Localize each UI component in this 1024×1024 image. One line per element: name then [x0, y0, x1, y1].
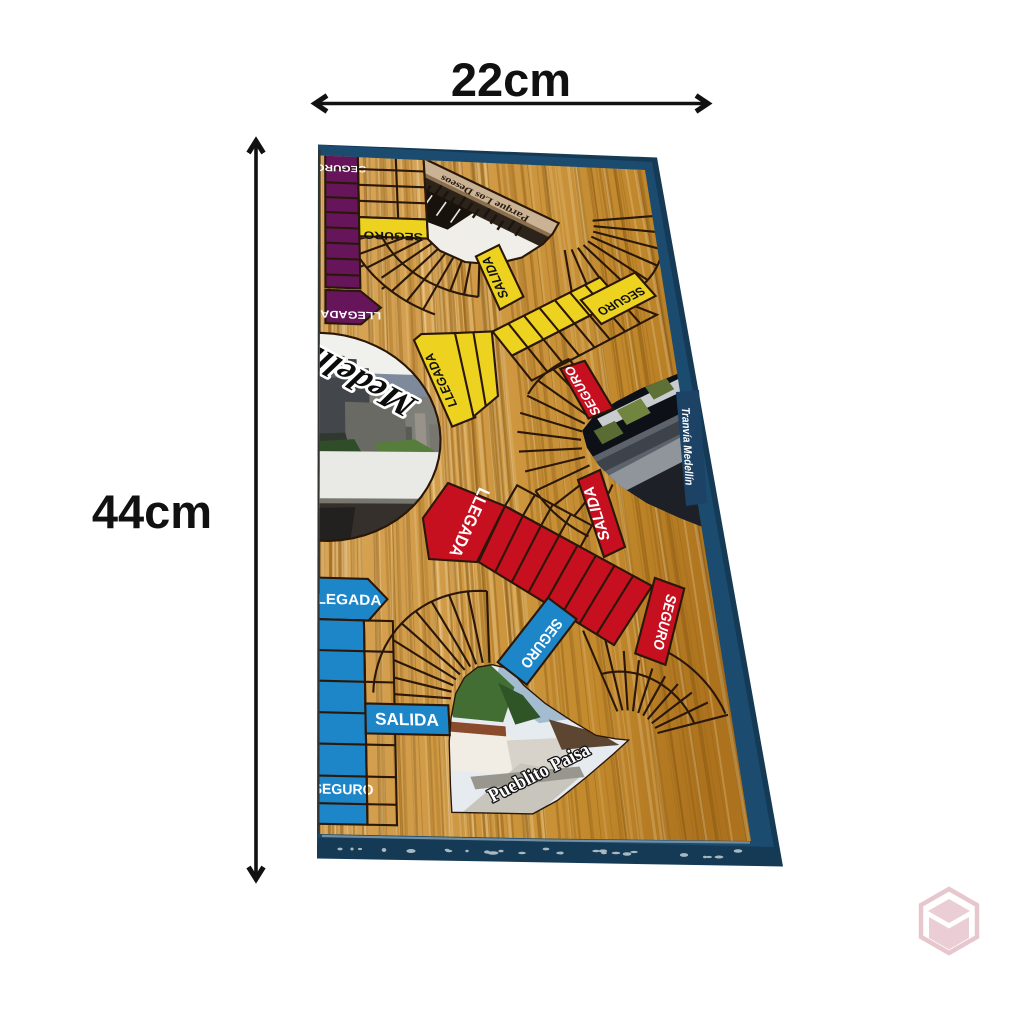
svg-text:SEGURO: SEGURO	[313, 781, 374, 798]
svg-text:LLEGADA: LLEGADA	[320, 308, 382, 321]
svg-text:SALIDA: SALIDA	[375, 710, 439, 730]
svg-text:44cm: 44cm	[92, 485, 212, 538]
svg-text:22cm: 22cm	[451, 53, 571, 106]
